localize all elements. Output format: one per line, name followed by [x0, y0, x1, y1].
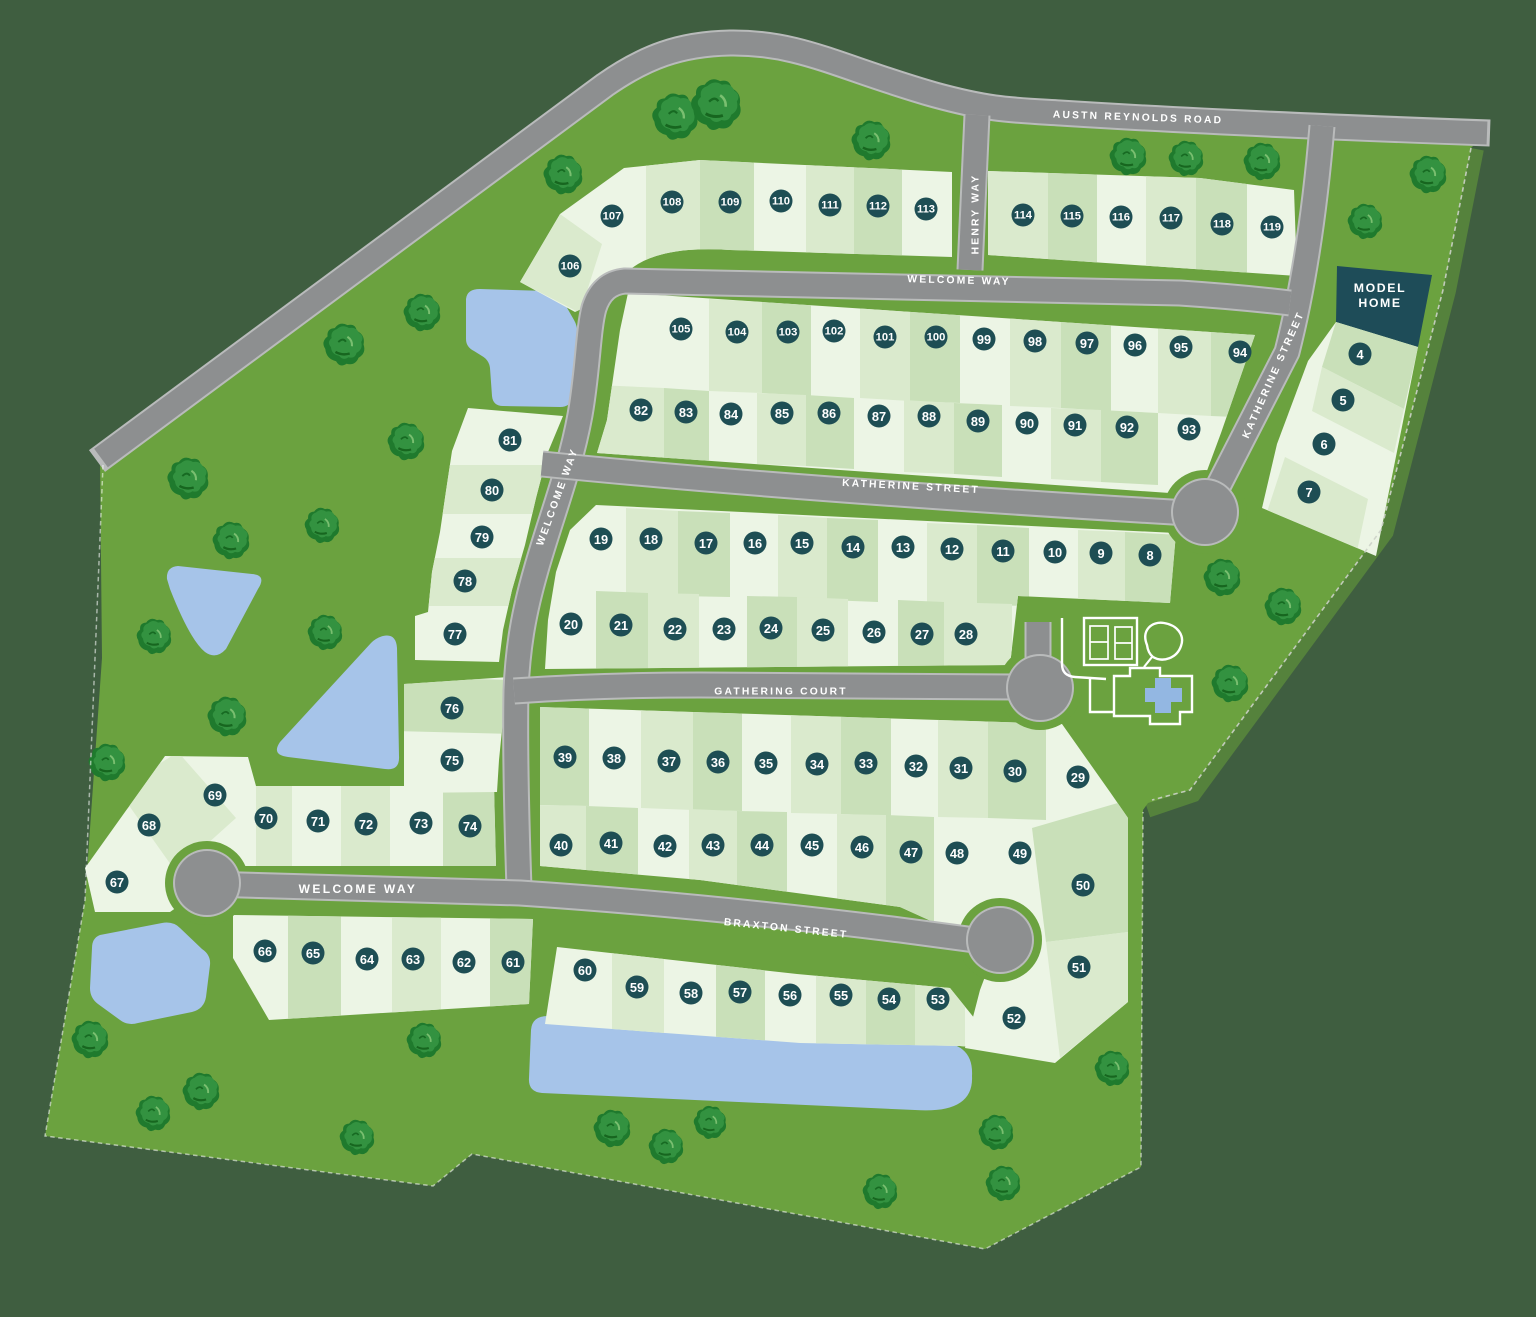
svg-text:118: 118 [1213, 219, 1231, 231]
svg-text:107: 107 [603, 211, 622, 223]
svg-text:78: 78 [458, 574, 472, 589]
svg-text:76: 76 [445, 701, 459, 716]
svg-text:72: 72 [359, 817, 373, 832]
svg-text:82: 82 [634, 403, 648, 418]
svg-text:77: 77 [448, 627, 462, 642]
svg-text:27: 27 [915, 627, 929, 642]
svg-text:109: 109 [721, 197, 740, 209]
svg-text:105: 105 [672, 324, 691, 336]
svg-text:60: 60 [578, 963, 592, 978]
svg-text:52: 52 [1007, 1011, 1021, 1026]
svg-text:55: 55 [834, 988, 848, 1003]
svg-text:33: 33 [859, 756, 873, 771]
svg-text:111: 111 [821, 200, 838, 212]
svg-text:17: 17 [699, 536, 713, 551]
svg-text:117: 117 [1162, 213, 1180, 225]
svg-text:90: 90 [1020, 416, 1034, 431]
svg-text:50: 50 [1076, 878, 1090, 893]
svg-text:88: 88 [922, 409, 936, 424]
svg-text:53: 53 [931, 992, 945, 1007]
svg-text:22: 22 [668, 622, 682, 637]
svg-text:28: 28 [959, 627, 973, 642]
svg-text:101: 101 [876, 332, 895, 344]
svg-text:75: 75 [445, 753, 459, 768]
svg-text:45: 45 [805, 838, 819, 853]
svg-text:103: 103 [779, 327, 798, 339]
svg-text:34: 34 [810, 757, 825, 772]
svg-text:12: 12 [945, 542, 959, 557]
svg-text:57: 57 [733, 985, 747, 1000]
svg-text:86: 86 [822, 406, 836, 421]
svg-text:25: 25 [816, 623, 830, 638]
svg-text:95: 95 [1174, 340, 1188, 355]
svg-text:44: 44 [755, 838, 770, 853]
svg-text:14: 14 [846, 540, 861, 555]
svg-text:98: 98 [1028, 334, 1042, 349]
svg-text:116: 116 [1112, 212, 1130, 224]
svg-text:54: 54 [882, 992, 897, 1007]
svg-text:58: 58 [684, 986, 698, 1001]
svg-text:80: 80 [485, 483, 499, 498]
svg-text:73: 73 [414, 816, 428, 831]
svg-text:114: 114 [1014, 210, 1033, 222]
svg-text:87: 87 [872, 409, 886, 424]
svg-text:21: 21 [614, 618, 628, 633]
svg-text:15: 15 [795, 536, 809, 551]
svg-text:68: 68 [142, 818, 156, 833]
svg-text:59: 59 [630, 980, 644, 995]
svg-text:7: 7 [1305, 485, 1312, 500]
svg-text:110: 110 [772, 196, 790, 208]
svg-text:100: 100 [927, 332, 946, 344]
svg-text:11: 11 [996, 544, 1010, 559]
svg-text:104: 104 [728, 327, 747, 339]
svg-text:62: 62 [457, 955, 471, 970]
svg-text:32: 32 [909, 759, 923, 774]
svg-text:18: 18 [644, 532, 658, 547]
svg-text:115: 115 [1063, 211, 1081, 223]
svg-text:97: 97 [1080, 336, 1094, 351]
svg-text:74: 74 [463, 819, 478, 834]
svg-text:119: 119 [1263, 222, 1281, 234]
svg-text:51: 51 [1072, 960, 1086, 975]
svg-text:29: 29 [1071, 770, 1085, 785]
svg-text:WELCOME WAY: WELCOME WAY [299, 882, 418, 896]
svg-text:23: 23 [717, 622, 731, 637]
svg-text:93: 93 [1182, 422, 1196, 437]
svg-text:64: 64 [360, 952, 375, 967]
svg-text:94: 94 [1233, 345, 1248, 360]
svg-text:81: 81 [503, 433, 517, 448]
svg-text:96: 96 [1128, 338, 1142, 353]
svg-text:85: 85 [775, 406, 789, 421]
svg-text:112: 112 [869, 201, 887, 213]
svg-text:MODEL: MODEL [1354, 281, 1406, 295]
svg-text:70: 70 [259, 811, 273, 826]
svg-text:108: 108 [663, 197, 682, 209]
svg-text:69: 69 [208, 788, 222, 803]
svg-text:79: 79 [475, 530, 489, 545]
svg-text:67: 67 [110, 875, 124, 890]
svg-text:40: 40 [554, 838, 568, 853]
svg-text:65: 65 [306, 946, 320, 961]
svg-text:48: 48 [950, 846, 964, 861]
svg-text:26: 26 [867, 625, 881, 640]
svg-text:30: 30 [1008, 764, 1022, 779]
svg-text:35: 35 [759, 756, 773, 771]
svg-text:84: 84 [724, 407, 739, 422]
svg-text:20: 20 [564, 617, 578, 632]
svg-text:83: 83 [679, 405, 693, 420]
svg-text:4: 4 [1356, 347, 1364, 362]
svg-text:9: 9 [1097, 546, 1104, 561]
svg-text:92: 92 [1120, 420, 1134, 435]
svg-text:13: 13 [896, 540, 910, 555]
svg-text:66: 66 [258, 944, 272, 959]
svg-text:63: 63 [406, 952, 420, 967]
svg-text:47: 47 [904, 845, 918, 860]
svg-text:6: 6 [1320, 437, 1327, 452]
svg-text:102: 102 [825, 326, 844, 338]
svg-text:24: 24 [764, 621, 779, 636]
svg-text:89: 89 [971, 414, 985, 429]
svg-text:37: 37 [662, 754, 676, 769]
svg-text:GATHERING COURT: GATHERING COURT [714, 687, 848, 698]
svg-text:39: 39 [558, 750, 572, 765]
svg-text:41: 41 [604, 836, 618, 851]
svg-text:HENRY WAY: HENRY WAY [971, 174, 982, 255]
svg-text:42: 42 [658, 839, 672, 854]
svg-text:31: 31 [954, 761, 968, 776]
svg-text:43: 43 [706, 838, 720, 853]
svg-text:99: 99 [977, 332, 991, 347]
svg-text:113: 113 [917, 204, 935, 216]
svg-text:HOME: HOME [1358, 296, 1401, 310]
svg-text:8: 8 [1146, 548, 1153, 563]
svg-text:71: 71 [311, 814, 325, 829]
svg-text:19: 19 [594, 532, 608, 547]
svg-text:10: 10 [1048, 545, 1062, 560]
svg-text:61: 61 [506, 955, 520, 970]
svg-text:36: 36 [711, 755, 725, 770]
svg-text:91: 91 [1068, 418, 1082, 433]
svg-text:5: 5 [1339, 393, 1346, 408]
svg-text:46: 46 [855, 840, 869, 855]
svg-text:56: 56 [783, 988, 797, 1003]
svg-text:38: 38 [607, 751, 621, 766]
svg-text:106: 106 [561, 261, 580, 273]
svg-text:49: 49 [1013, 846, 1027, 861]
svg-text:16: 16 [748, 536, 762, 551]
